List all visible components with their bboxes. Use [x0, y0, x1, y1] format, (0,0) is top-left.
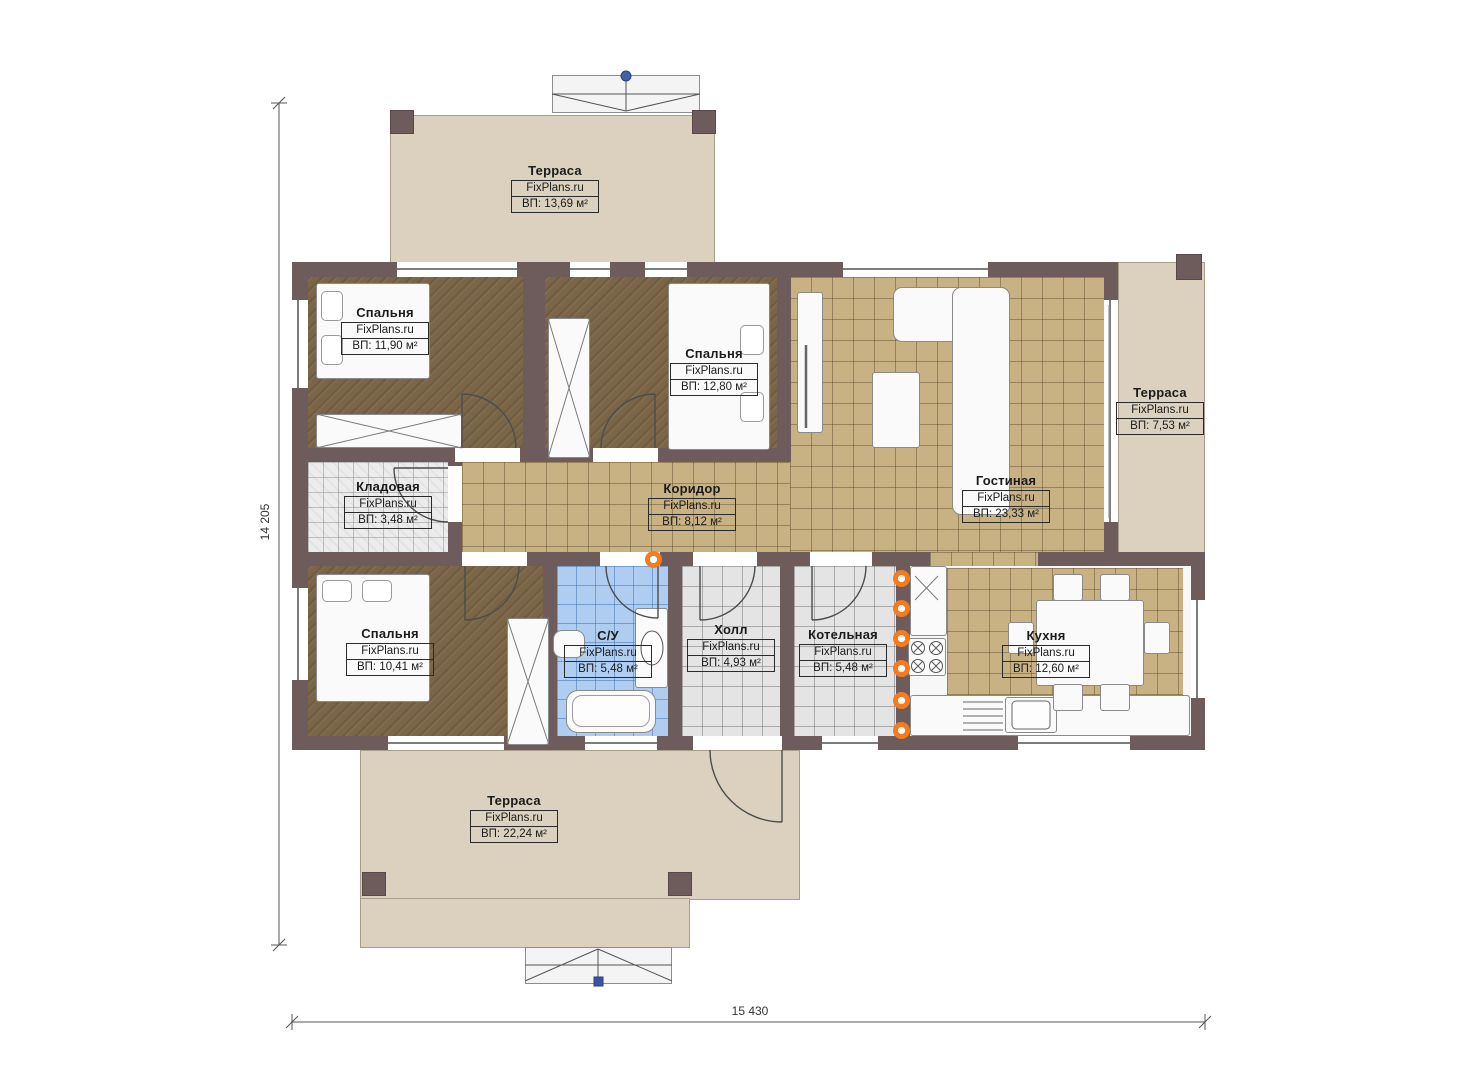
- dimension-height-label: 14 205: [258, 487, 272, 557]
- room-name: Терраса: [511, 163, 599, 178]
- room-brand: FixPlans.ru: [512, 181, 598, 197]
- room-name: Котельная: [799, 627, 887, 642]
- door-arcs: [394, 394, 866, 822]
- room-label-corridor: Коридор FixPlans.ru ВП: 8,12 м²: [648, 481, 736, 531]
- room-info-box: FixPlans.ru ВП: 3,48 м²: [344, 496, 432, 529]
- room-name: С/У: [564, 628, 652, 643]
- room-label-terrace-top: Терраса FixPlans.ru ВП: 13,69 м²: [511, 163, 599, 213]
- room-name: Спальня: [346, 626, 434, 641]
- room-name: Спальня: [670, 346, 758, 361]
- room-area: ВП: 8,12 м²: [649, 515, 735, 530]
- steps-lines: [525, 80, 700, 983]
- radiator-marker: [893, 692, 910, 709]
- dimension-lines: [271, 97, 1211, 1030]
- radiator-marker: [893, 660, 910, 677]
- room-brand: FixPlans.ru: [1117, 403, 1203, 419]
- room-name: Терраса: [1116, 385, 1204, 400]
- room-label-bedroom-1: Спальня FixPlans.ru ВП: 11,90 м²: [341, 305, 429, 355]
- radiator-marker: [893, 722, 910, 739]
- room-info-box: FixPlans.ru ВП: 4,93 м²: [687, 639, 775, 672]
- room-brand: FixPlans.ru: [342, 323, 428, 339]
- radiator-marker: [645, 551, 662, 568]
- room-name: Кладовая: [344, 479, 432, 494]
- room-label-bathroom: С/У FixPlans.ru ВП: 5,48 м²: [564, 628, 652, 678]
- room-name: Спальня: [341, 305, 429, 320]
- radiator-marker: [893, 570, 910, 587]
- room-info-box: FixPlans.ru ВП: 8,12 м²: [648, 498, 736, 531]
- stove-burners: [912, 642, 943, 673]
- room-area: ВП: 12,80 м²: [671, 380, 757, 395]
- wardrobe-x-marks: [316, 318, 938, 745]
- room-area: ВП: 11,90 м²: [342, 339, 428, 354]
- room-name: Кухня: [1002, 628, 1090, 643]
- room-area: ВП: 7,53 м²: [1117, 419, 1203, 434]
- room-area: ВП: 12,60 м²: [1003, 662, 1089, 677]
- room-area: ВП: 5,48 м²: [565, 662, 651, 677]
- plan-annotations-svg: [0, 0, 1474, 1080]
- room-brand: FixPlans.ru: [649, 499, 735, 515]
- room-brand: FixPlans.ru: [471, 811, 557, 827]
- room-info-box: FixPlans.ru ВП: 5,48 м²: [564, 645, 652, 678]
- room-area: ВП: 22,24 м²: [471, 827, 557, 842]
- room-label-terrace-right: Терраса FixPlans.ru ВП: 7,53 м²: [1116, 385, 1204, 435]
- room-brand: FixPlans.ru: [345, 497, 431, 513]
- room-info-box: FixPlans.ru ВП: 7,53 м²: [1116, 402, 1204, 435]
- room-area: ВП: 13,69 м²: [512, 197, 598, 212]
- room-info-box: FixPlans.ru ВП: 22,24 м²: [470, 810, 558, 843]
- room-area: ВП: 10,41 м²: [347, 660, 433, 675]
- room-info-box: FixPlans.ru ВП: 13,69 м²: [511, 180, 599, 213]
- room-area: ВП: 5,48 м²: [800, 661, 886, 676]
- room-label-terrace-bottom: Терраса FixPlans.ru ВП: 22,24 м²: [470, 793, 558, 843]
- room-brand: FixPlans.ru: [963, 491, 1049, 507]
- dimension-width-label: 15 430: [700, 1004, 800, 1018]
- room-brand: FixPlans.ru: [565, 646, 651, 662]
- room-label-living-room: Гостиная FixPlans.ru ВП: 23,33 м²: [962, 473, 1050, 523]
- room-brand: FixPlans.ru: [688, 640, 774, 656]
- room-info-box: FixPlans.ru ВП: 11,90 м²: [341, 322, 429, 355]
- room-label-bedroom-3: Спальня FixPlans.ru ВП: 10,41 м²: [346, 626, 434, 676]
- room-name: Терраса: [470, 793, 558, 808]
- room-name: Коридор: [648, 481, 736, 496]
- room-brand: FixPlans.ru: [1003, 646, 1089, 662]
- room-label-boiler-room: Котельная FixPlans.ru ВП: 5,48 м²: [799, 627, 887, 677]
- room-brand: FixPlans.ru: [347, 644, 433, 660]
- room-label-bedroom-2: Спальня FixPlans.ru ВП: 12,80 м²: [670, 346, 758, 396]
- room-label-kitchen: Кухня FixPlans.ru ВП: 12,60 м²: [1002, 628, 1090, 678]
- floor-plan: Терраса FixPlans.ru ВП: 13,69 м² Спальня…: [0, 0, 1474, 1080]
- room-name: Гостиная: [962, 473, 1050, 488]
- room-info-box: FixPlans.ru ВП: 12,80 м²: [670, 363, 758, 396]
- room-area: ВП: 3,48 м²: [345, 513, 431, 528]
- radiator-marker: [893, 600, 910, 617]
- room-area: ВП: 4,93 м²: [688, 656, 774, 671]
- room-brand: FixPlans.ru: [800, 645, 886, 661]
- room-label-storage: Кладовая FixPlans.ru ВП: 3,48 м²: [344, 479, 432, 529]
- room-area: ВП: 23,33 м²: [963, 507, 1049, 522]
- room-name: Холл: [687, 622, 775, 637]
- radiator-marker: [893, 630, 910, 647]
- room-brand: FixPlans.ru: [671, 364, 757, 380]
- room-info-box: FixPlans.ru ВП: 12,60 м²: [1002, 645, 1090, 678]
- room-info-box: FixPlans.ru ВП: 5,48 м²: [799, 644, 887, 677]
- room-info-box: FixPlans.ru ВП: 10,41 м²: [346, 643, 434, 676]
- room-label-hall: Холл FixPlans.ru ВП: 4,93 м²: [687, 622, 775, 672]
- room-info-box: FixPlans.ru ВП: 23,33 м²: [962, 490, 1050, 523]
- entry-markers: [594, 71, 631, 986]
